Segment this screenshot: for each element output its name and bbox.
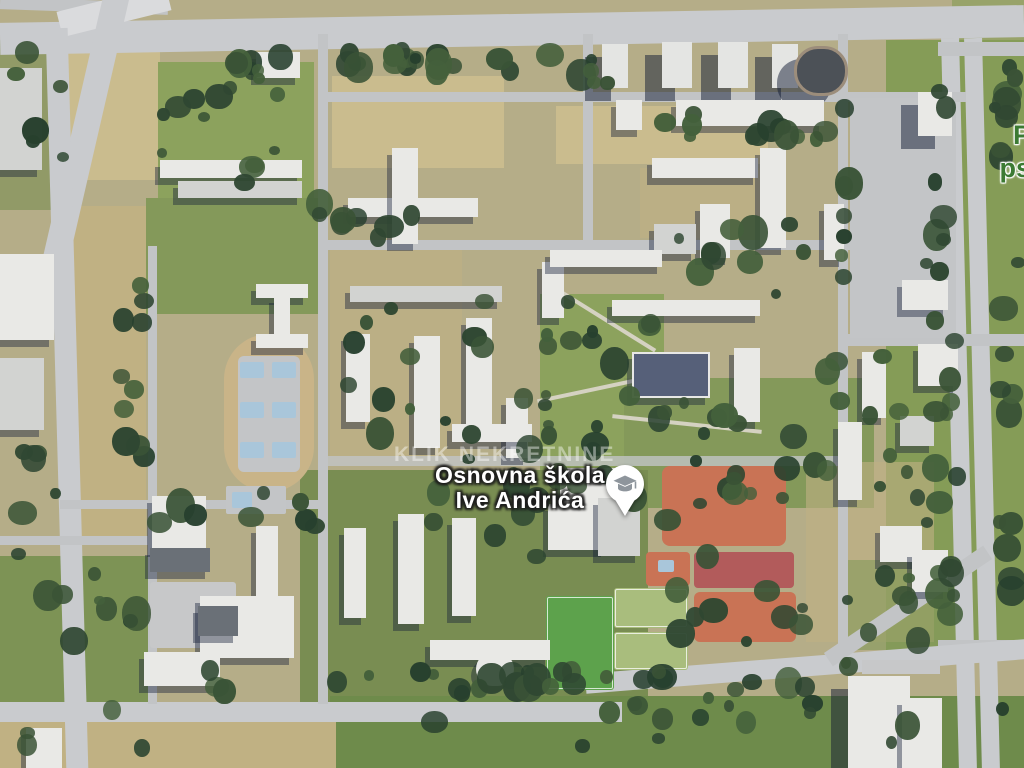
building xyxy=(734,348,760,422)
tree xyxy=(711,403,738,428)
building xyxy=(862,660,940,674)
tree xyxy=(771,289,781,300)
tree xyxy=(839,657,858,676)
tree xyxy=(157,108,169,122)
tree xyxy=(343,331,365,355)
road xyxy=(318,34,328,704)
tree xyxy=(327,671,346,693)
tree xyxy=(292,493,309,511)
tree xyxy=(312,207,327,221)
tree xyxy=(424,513,443,531)
tree xyxy=(270,87,285,102)
tree xyxy=(948,467,966,486)
building xyxy=(838,422,862,500)
tree xyxy=(701,242,726,270)
tree xyxy=(699,598,728,622)
building xyxy=(256,526,278,602)
tree xyxy=(122,596,151,631)
tree xyxy=(947,589,960,602)
tree xyxy=(20,727,35,739)
building xyxy=(344,528,366,618)
tree xyxy=(88,567,101,581)
tree xyxy=(674,233,684,244)
building xyxy=(616,100,642,130)
tree xyxy=(641,314,660,333)
tree xyxy=(253,73,264,85)
place-label-cropped[interactable]: P ps xyxy=(999,119,1024,185)
tree xyxy=(600,76,615,90)
building xyxy=(902,280,948,310)
tree xyxy=(906,627,930,654)
tree xyxy=(633,670,654,689)
tree xyxy=(600,347,629,381)
place-label-line1: P xyxy=(999,119,1024,152)
tree xyxy=(205,84,233,109)
tree xyxy=(421,711,448,733)
tree xyxy=(225,52,248,74)
tree xyxy=(560,331,582,350)
tree xyxy=(930,262,948,281)
tree xyxy=(774,120,799,150)
building xyxy=(652,158,758,178)
tree xyxy=(384,302,398,315)
tree xyxy=(930,205,957,230)
tree xyxy=(7,67,25,81)
place-label-line2: ps xyxy=(999,152,1024,185)
tree xyxy=(926,491,953,514)
tree xyxy=(541,426,557,445)
tree xyxy=(340,377,357,393)
tree xyxy=(836,208,853,224)
tree xyxy=(895,711,920,740)
tree xyxy=(774,456,801,481)
tree xyxy=(364,670,375,680)
tree xyxy=(587,325,598,338)
tree xyxy=(796,244,811,260)
tree xyxy=(945,333,964,350)
tree xyxy=(268,44,292,70)
building xyxy=(612,300,760,316)
tree xyxy=(797,603,808,613)
tree xyxy=(727,682,744,697)
building xyxy=(632,352,710,398)
building xyxy=(256,334,308,348)
tree xyxy=(830,392,850,409)
tree xyxy=(383,54,406,75)
tree xyxy=(269,146,280,155)
tree xyxy=(370,228,386,247)
building xyxy=(718,42,748,88)
building xyxy=(0,358,44,430)
road xyxy=(938,42,1024,56)
tree xyxy=(737,250,763,274)
sport-area xyxy=(240,362,264,378)
tree xyxy=(561,295,575,309)
tree xyxy=(720,219,744,240)
tree xyxy=(724,700,734,712)
tree xyxy=(835,249,848,261)
sport-area xyxy=(272,402,296,418)
tree xyxy=(754,580,780,601)
tree xyxy=(94,596,105,605)
tree xyxy=(60,627,88,655)
tree xyxy=(744,487,757,501)
tree xyxy=(883,448,897,463)
tree xyxy=(899,591,919,613)
tree xyxy=(113,308,134,332)
building xyxy=(542,262,564,318)
tree xyxy=(366,417,394,450)
tree xyxy=(657,405,672,420)
tree xyxy=(600,670,613,684)
tree xyxy=(52,585,73,604)
sport-area xyxy=(658,560,674,572)
tree xyxy=(860,623,876,642)
tree xyxy=(599,701,620,724)
tree xyxy=(776,492,789,505)
tree xyxy=(665,577,689,603)
tree xyxy=(103,700,120,720)
tree xyxy=(813,121,838,141)
tree xyxy=(538,399,552,411)
school-pin-icon[interactable] xyxy=(603,462,647,520)
tree xyxy=(815,358,840,385)
tree xyxy=(692,709,709,726)
tree xyxy=(835,269,853,285)
tree xyxy=(666,619,695,648)
tree xyxy=(923,401,949,422)
tree xyxy=(989,296,1017,320)
tree xyxy=(835,167,863,200)
tree xyxy=(132,277,149,294)
tree xyxy=(652,708,673,730)
tree xyxy=(484,524,506,546)
tree xyxy=(990,381,1010,398)
tree xyxy=(910,489,926,506)
tree xyxy=(1007,69,1023,86)
tree xyxy=(112,427,139,456)
tree xyxy=(997,576,1024,605)
building xyxy=(0,254,54,340)
tree xyxy=(344,52,373,82)
tree xyxy=(780,424,807,449)
building xyxy=(550,250,662,267)
tree xyxy=(124,380,144,398)
tree xyxy=(536,43,564,68)
building xyxy=(794,46,848,96)
tree xyxy=(527,549,545,564)
tree xyxy=(514,388,533,409)
tree xyxy=(132,313,152,332)
tree xyxy=(654,509,681,531)
tree xyxy=(486,48,513,70)
road xyxy=(838,34,848,646)
tree xyxy=(53,80,68,93)
tree xyxy=(403,205,420,225)
tree xyxy=(926,311,945,329)
satellite-map[interactable]: KLIK NEKRETNINE P ps Osnovna škola Ive A… xyxy=(0,0,1024,768)
tree xyxy=(652,733,664,744)
building xyxy=(274,296,290,336)
building xyxy=(160,160,302,178)
tree xyxy=(726,472,742,486)
tree xyxy=(471,336,494,358)
tree xyxy=(477,663,505,693)
tree xyxy=(15,41,39,64)
sport-area xyxy=(232,492,252,508)
building xyxy=(662,42,692,88)
tree xyxy=(654,113,675,132)
tree xyxy=(201,660,219,681)
tree xyxy=(781,217,798,232)
tree xyxy=(835,99,854,119)
tree xyxy=(50,488,60,500)
tree xyxy=(360,315,373,330)
road xyxy=(0,536,152,545)
building xyxy=(198,606,238,636)
tree xyxy=(542,678,559,695)
building xyxy=(452,518,476,616)
tree xyxy=(475,294,493,310)
tree xyxy=(921,517,934,528)
tree xyxy=(817,460,838,481)
tree xyxy=(874,481,886,492)
sport-area xyxy=(272,362,296,378)
tree xyxy=(741,636,753,647)
tree xyxy=(1011,257,1024,268)
tree xyxy=(928,173,943,191)
tree xyxy=(703,692,714,704)
tree xyxy=(862,406,878,425)
building xyxy=(150,548,210,572)
tree xyxy=(410,53,422,63)
building xyxy=(398,514,424,624)
tree xyxy=(795,677,814,697)
road xyxy=(0,702,622,722)
tree xyxy=(804,707,815,719)
tree xyxy=(213,679,235,704)
tree xyxy=(21,445,46,472)
tree xyxy=(903,573,915,583)
tree xyxy=(652,665,666,679)
tree xyxy=(462,425,481,444)
tree xyxy=(440,416,451,426)
tree xyxy=(8,501,37,525)
sport-area xyxy=(272,442,296,458)
tree xyxy=(993,515,1006,529)
tree xyxy=(372,387,395,411)
tree xyxy=(922,454,949,482)
tree xyxy=(842,595,853,605)
tree xyxy=(426,60,447,85)
tree xyxy=(238,507,263,528)
sport-area xyxy=(240,402,264,418)
tree xyxy=(405,403,416,415)
tree xyxy=(993,534,1022,562)
ground-patch xyxy=(332,76,504,168)
tree xyxy=(939,367,961,392)
tree xyxy=(736,711,757,734)
tree xyxy=(742,674,762,690)
tree xyxy=(628,696,647,716)
tree xyxy=(234,174,254,191)
sport-area xyxy=(240,442,264,458)
tree xyxy=(157,148,167,158)
tree xyxy=(22,117,50,144)
tree xyxy=(330,207,357,232)
tree xyxy=(789,614,812,635)
tree xyxy=(134,739,150,757)
tree xyxy=(690,455,702,467)
tree xyxy=(698,427,710,440)
tree xyxy=(295,509,317,532)
tree xyxy=(583,63,599,79)
tree xyxy=(400,348,420,365)
